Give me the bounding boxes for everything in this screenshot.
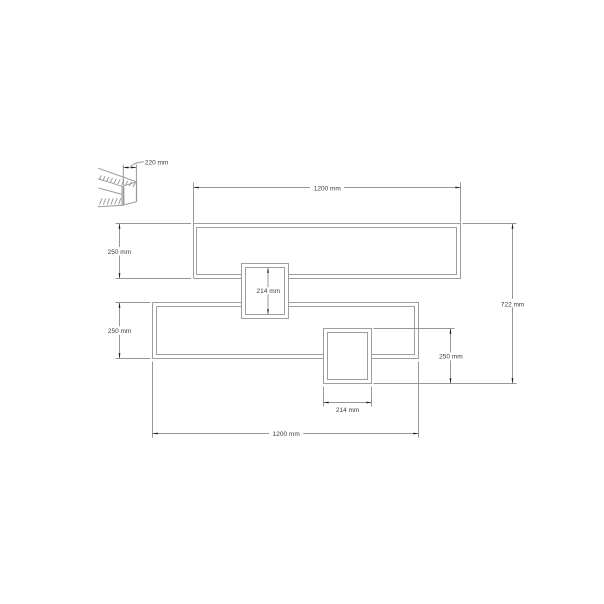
svg-text:1200 mm: 1200 mm <box>314 185 341 192</box>
svg-text:722 mm: 722 mm <box>501 301 524 308</box>
svg-text:214 mm: 214 mm <box>336 407 359 414</box>
svg-text:214 mm: 214 mm <box>257 288 280 295</box>
svg-text:250 mm: 250 mm <box>108 249 131 256</box>
svg-text:250 mm: 250 mm <box>439 353 462 360</box>
svg-text:220 mm: 220 mm <box>145 159 168 166</box>
svg-text:1200 mm: 1200 mm <box>273 431 300 438</box>
svg-text:250 mm: 250 mm <box>108 328 131 335</box>
